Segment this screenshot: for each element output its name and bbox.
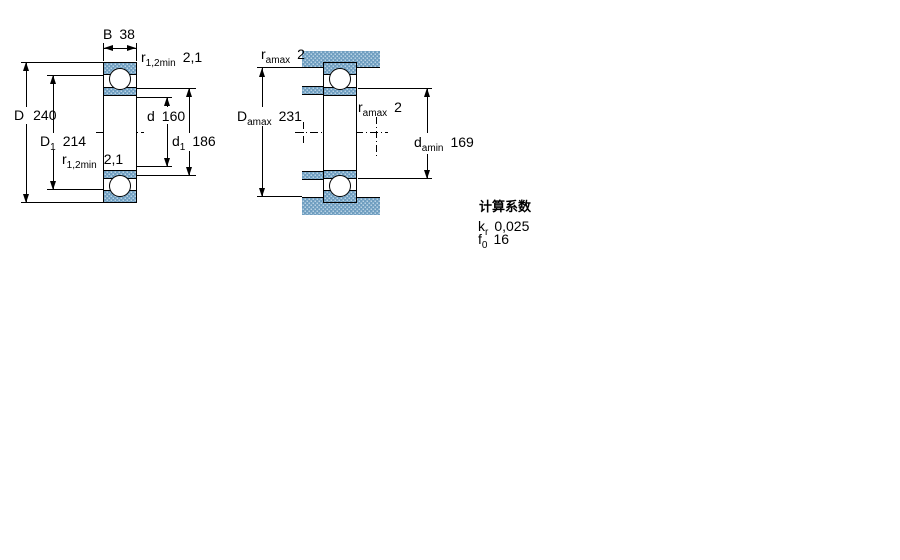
arrowhead <box>164 97 170 106</box>
extension-line <box>358 88 432 89</box>
bearing-drawing-page: B38 r1,2min2,1 D240 D1214 r1,2min2,1 <box>0 0 900 560</box>
arrowhead <box>23 62 29 71</box>
dimension-label-r-top: r1,2min2,1 <box>141 50 202 69</box>
dimension-label-ra-top: ramax2 <box>261 47 305 66</box>
ball-top <box>109 68 131 90</box>
arrowhead <box>186 167 192 176</box>
arrowhead <box>23 194 29 203</box>
extension-line <box>136 43 137 61</box>
factor-f0: f016 <box>478 232 509 251</box>
arrowhead <box>424 170 430 179</box>
ball-bottom <box>109 175 131 197</box>
arrowhead <box>259 68 265 77</box>
shaft-shoulder-hatch-bottom <box>302 171 323 180</box>
dimension-label-ra-mid: ramax2 <box>358 100 402 119</box>
shaft-shoulder-hatch-top <box>302 86 323 95</box>
dimension-label-B: B38 <box>103 27 135 42</box>
dimension-label-r-bottom: r1,2min2,1 <box>62 152 123 171</box>
arrowhead <box>127 45 136 51</box>
dimension-label-da: damin169 <box>414 135 474 154</box>
arrowhead <box>50 75 56 84</box>
extension-line <box>21 202 103 203</box>
ball-top <box>329 68 351 90</box>
ball-bottom <box>329 175 351 197</box>
centerline-cross <box>376 117 377 158</box>
arrowhead <box>164 158 170 167</box>
arrowhead <box>104 45 113 51</box>
dimension-line-D <box>26 124 27 203</box>
arrowhead <box>424 88 430 97</box>
dimension-label-d1: d1186 <box>172 134 216 153</box>
dimension-label-d: d160 <box>147 109 185 124</box>
dimension-label-Da: Damax231 <box>237 109 302 128</box>
arrowhead <box>186 88 192 97</box>
centerline-cross <box>303 122 304 145</box>
dimension-label-D: D240 <box>14 108 56 123</box>
arrowhead <box>259 188 265 197</box>
extension-line <box>358 178 432 179</box>
bearing-cross-section <box>103 62 137 203</box>
dimension-line-Da <box>262 126 263 197</box>
dimension-label-D1: D1214 <box>40 134 86 153</box>
arrowhead <box>50 181 56 190</box>
factors-title: 计算系数 <box>479 200 531 214</box>
extension-line <box>21 62 103 63</box>
bearing-cross-section <box>323 62 357 203</box>
